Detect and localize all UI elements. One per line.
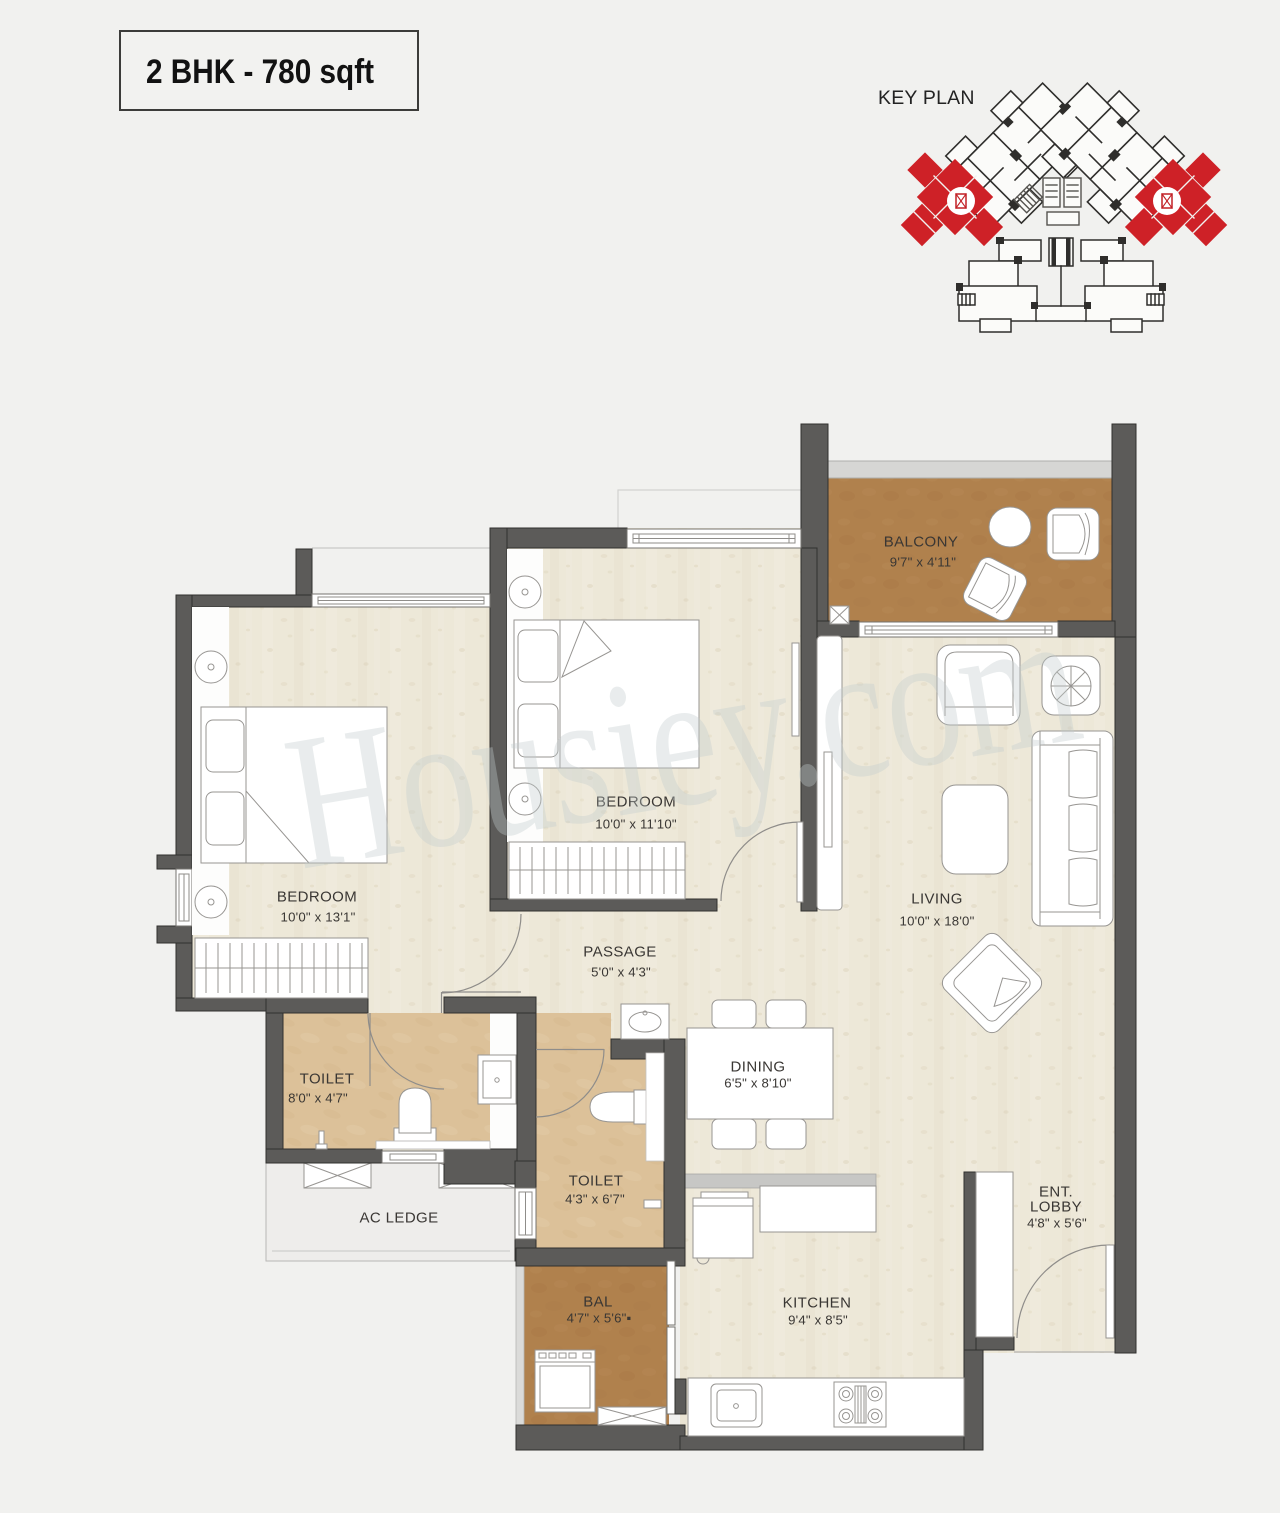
svg-text:LIVING: LIVING <box>911 891 963 908</box>
svg-text:TOILET: TOILET <box>300 1071 355 1088</box>
svg-text:KEY PLAN: KEY PLAN <box>878 87 975 109</box>
svg-text:LOBBY: LOBBY <box>1030 1199 1082 1216</box>
svg-text:6'5" x 8'10": 6'5" x 8'10" <box>724 1076 792 1091</box>
svg-text:4'7" x 5'6"▪: 4'7" x 5'6"▪ <box>567 1311 632 1326</box>
svg-text:8'0" x 4'7": 8'0" x 4'7" <box>288 1091 348 1106</box>
svg-text:10'0" x 18'0": 10'0" x 18'0" <box>900 914 975 929</box>
svg-text:5'0" x 4'3": 5'0" x 4'3" <box>591 965 651 980</box>
svg-text:DINING: DINING <box>731 1059 786 1076</box>
svg-text:KITCHEN: KITCHEN <box>783 1295 852 1312</box>
svg-text:BALCONY: BALCONY <box>884 534 959 551</box>
svg-text:9'7" x 4'11": 9'7" x 4'11" <box>890 555 957 570</box>
svg-text:4'3" x 6'7": 4'3" x 6'7" <box>565 1192 625 1207</box>
svg-text:PASSAGE: PASSAGE <box>583 944 656 961</box>
svg-text:4'8" x 5'6": 4'8" x 5'6" <box>1027 1216 1087 1231</box>
svg-text:10'0" x 13'1": 10'0" x 13'1" <box>281 910 356 925</box>
svg-text:AC LEDGE: AC LEDGE <box>359 1210 438 1227</box>
svg-text:9'4" x 8'5": 9'4" x 8'5" <box>788 1313 848 1328</box>
svg-text:2 BHK - 780 sqft: 2 BHK - 780 sqft <box>146 53 374 91</box>
svg-text:TOILET: TOILET <box>569 1173 624 1190</box>
svg-text:BAL: BAL <box>583 1294 613 1311</box>
